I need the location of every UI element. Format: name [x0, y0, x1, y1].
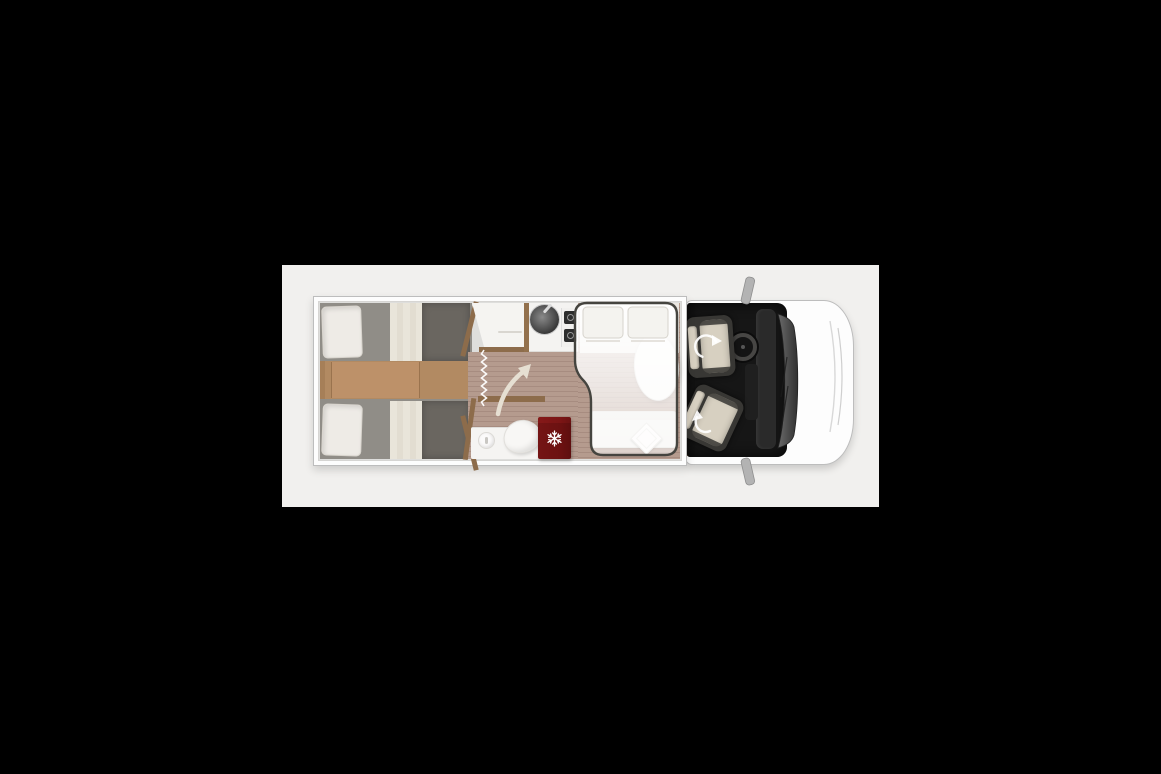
burner-icon — [564, 311, 577, 324]
pillow-bottom-bed — [321, 403, 363, 456]
bathroom-wood-wall — [478, 396, 545, 402]
center-console — [745, 364, 758, 420]
two-burner-hob — [561, 308, 579, 347]
faucet-icon — [543, 303, 553, 313]
kitchen-sink — [530, 305, 559, 334]
driver-swivel-seat — [685, 314, 736, 378]
motorhome-floorplan — [282, 265, 879, 507]
snowflake-icon — [544, 428, 565, 449]
pillow-top-bed — [321, 305, 363, 358]
dashboard — [756, 309, 776, 449]
floorplan-panel — [282, 265, 879, 507]
bedroom-step — [331, 362, 420, 398]
fridge — [538, 417, 571, 459]
drawer-handle — [498, 331, 522, 333]
duvet-bottom-bed — [390, 401, 422, 459]
bathroom-basin — [478, 432, 495, 449]
headrest — [688, 325, 700, 369]
page: { "meta": { "scene_title": "Motorhome fl… — [0, 0, 1161, 774]
burner-icon — [564, 329, 577, 342]
duvet-top-bed — [390, 303, 422, 361]
seat-cushion — [699, 319, 731, 374]
